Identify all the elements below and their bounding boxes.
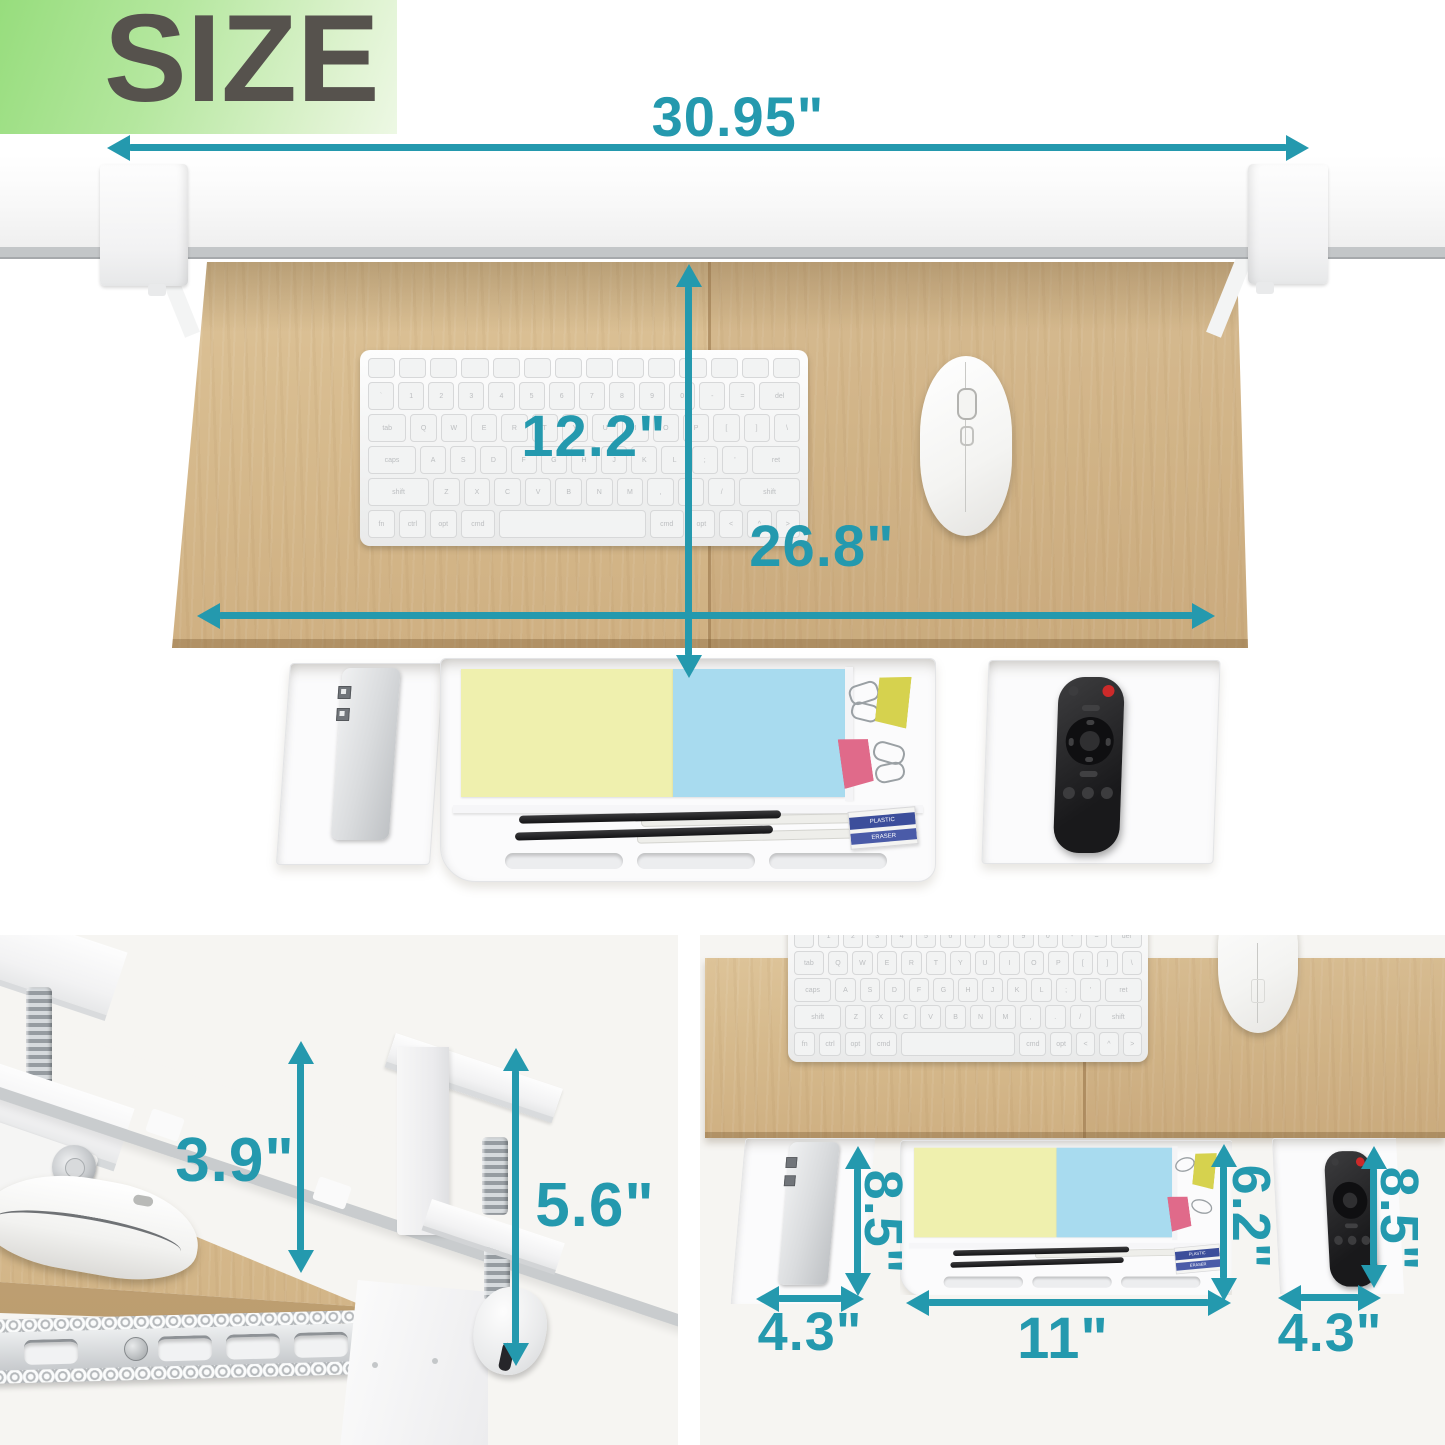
keyboard-key	[399, 358, 426, 378]
binder-clip-wire	[1190, 1197, 1214, 1217]
keyboard-key: 6	[940, 935, 960, 948]
keyboard-key: del	[1111, 935, 1142, 948]
far-clamp-top	[0, 935, 128, 1021]
keyboard-key: S	[860, 978, 881, 1002]
remote-button	[1063, 787, 1075, 799]
drawer-slot	[505, 853, 623, 869]
keyboard-key: B	[555, 478, 582, 506]
mouse-button	[960, 426, 974, 446]
keyboard-key: opt	[845, 1032, 866, 1056]
sticky-note-yellow	[461, 669, 673, 797]
left-side-drawer	[276, 663, 444, 865]
keyboard-key: [	[713, 414, 739, 442]
rail-slot	[294, 1332, 349, 1358]
keyboard-key: ret	[1105, 978, 1142, 1002]
remote-button	[1068, 686, 1078, 696]
keyboard-key: 4	[891, 935, 911, 948]
right-side-drawer	[981, 660, 1220, 864]
keyboard-key: M	[995, 1005, 1016, 1029]
screw-dot	[372, 1362, 378, 1368]
keyboard-key: 9	[1013, 935, 1033, 948]
sticky-note-blue	[1057, 1148, 1173, 1238]
keyboard-key: caps	[794, 978, 831, 1002]
clamp-right-knob	[1256, 282, 1274, 294]
dimension-label-desk-width: 30.95"	[618, 88, 858, 144]
clamp-right	[1248, 164, 1328, 284]
desk-slab	[0, 155, 1445, 247]
eraser-label: ERASER	[1176, 1259, 1221, 1271]
keyboard-key: C	[494, 478, 521, 506]
clamp-screw-upper	[482, 1137, 508, 1215]
keyboard-key: fn	[368, 510, 395, 538]
keyboard-key: Q	[828, 951, 848, 975]
rail-screw	[124, 1337, 149, 1362]
keyboard-key: .	[1045, 1005, 1066, 1029]
keyboard-key: /	[1070, 1005, 1091, 1029]
keyboard-key: <	[1076, 1032, 1095, 1056]
keyboard-key: cmd	[461, 510, 495, 538]
usb-hub-device	[778, 1142, 840, 1285]
keyboard-key: X	[870, 1005, 891, 1029]
dimension-label-left-drawer-width: 4.3"	[740, 1304, 880, 1360]
remote-dpad	[1065, 717, 1115, 765]
keyboard-key: 3	[458, 382, 484, 410]
keyboard-key: ,	[1020, 1005, 1041, 1029]
keyboard-key: N	[970, 1005, 991, 1029]
dimension-label-right-drawer-depth: 8.5"	[1371, 1159, 1427, 1279]
drawer-slot	[1032, 1277, 1111, 1288]
dimension-label-center-drawer-depth: 6.2"	[1223, 1157, 1279, 1277]
rail-slot	[24, 1339, 79, 1365]
drawer-slot	[769, 853, 887, 869]
keyboard-key: 5	[916, 935, 936, 948]
dimension-label-clearance: 3.9"	[155, 1128, 315, 1192]
clamp-left-knob	[148, 284, 166, 296]
keyboard-key: `	[794, 935, 814, 948]
keyboard-key: 2	[428, 382, 454, 410]
dimension-label-tray-depth: 12.2"	[494, 408, 694, 464]
keyboard-key: 3	[867, 935, 887, 948]
keyboard-key: -	[1062, 935, 1082, 948]
keyboard-key	[586, 358, 613, 378]
keyboard-key: del	[759, 382, 800, 410]
keyboard-key: shift	[368, 478, 429, 506]
drawer-slot	[637, 853, 755, 869]
page-title: SIZE	[104, 0, 380, 124]
keyboard-key: tab	[794, 951, 824, 975]
mouse	[920, 356, 1012, 536]
remote-button	[1334, 1236, 1343, 1245]
keyboard-key: R	[901, 951, 921, 975]
remote-button	[1082, 787, 1094, 799]
eraser-label: PLASTIC	[849, 812, 916, 830]
keyboard-key: -	[699, 382, 725, 410]
screw-dot	[432, 1358, 438, 1364]
keyboard-key: I	[999, 951, 1019, 975]
keyboard-key: ctrl	[819, 1032, 840, 1056]
dimension-arrow-right-drawer-width	[1299, 1294, 1360, 1301]
keyboard-key: 1	[818, 935, 838, 948]
dimension-label-clamp-height: 5.6"	[515, 1173, 675, 1237]
keyboard-key	[773, 358, 800, 378]
keyboard-key	[901, 1032, 1015, 1056]
desk-slab-edge	[0, 247, 1445, 259]
eraser: PLASTIC ERASER	[847, 806, 918, 850]
remote-power-button	[1102, 685, 1114, 697]
keyboard-key: C	[895, 1005, 916, 1029]
keyboard-key	[430, 358, 457, 378]
keyboard-key: opt	[1050, 1032, 1071, 1056]
dimension-arrow-tray-depth	[685, 285, 692, 657]
keyboard-key: ]	[744, 414, 770, 442]
under-drawer-view: `1234567890-=deltabQWERTYUIOP[]\capsASDF…	[700, 935, 1445, 1445]
rail-slot	[226, 1333, 281, 1359]
usb-port-icon	[336, 708, 350, 721]
keyboard-key	[711, 358, 738, 378]
dimension-label-right-drawer-width: 4.3"	[1260, 1305, 1400, 1361]
keyboard-key	[679, 358, 706, 378]
keyboard-key: V	[525, 478, 552, 506]
keyboard-key: P	[1048, 951, 1068, 975]
keyboard-key: W	[852, 951, 872, 975]
title-panel: SIZE	[0, 0, 397, 134]
keyboard-key: U	[975, 951, 995, 975]
keyboard-key: V	[920, 1005, 941, 1029]
dimension-arrow-tray-width	[218, 612, 1194, 619]
drawer-slide-rail	[0, 1310, 363, 1384]
keyboard-key: ]	[1097, 951, 1117, 975]
keyboard-key: =	[1086, 935, 1106, 948]
keyboard-key: '	[722, 446, 748, 474]
keyboard-key: \	[774, 414, 800, 442]
keyboard-key: E	[877, 951, 897, 975]
usb-hub-device	[331, 668, 401, 840]
keyboard-key: shift	[1095, 1005, 1142, 1029]
keyboard-key: O	[1024, 951, 1044, 975]
keyboard: `1234567890-=deltabQWERTYUIOP[]\capsASDF…	[788, 935, 1148, 1062]
keyboard-key: shift	[794, 1005, 841, 1029]
usb-port-icon	[338, 686, 352, 699]
keyboard-key: 2	[843, 935, 863, 948]
keyboard-key: =	[729, 382, 755, 410]
keyboard-key: ,	[647, 478, 674, 506]
keyboard-key: \	[1122, 951, 1142, 975]
eraser: PLASTIC ERASER	[1174, 1244, 1222, 1275]
keyboard-key: ;	[692, 446, 718, 474]
keyboard-key: caps	[368, 446, 416, 474]
keyboard-key	[617, 358, 644, 378]
remote-control	[1053, 677, 1125, 853]
keyboard-key: Z	[845, 1005, 866, 1029]
sticky-note-blue	[673, 669, 845, 797]
keyboard-key: >	[1123, 1032, 1142, 1056]
remote-button	[1101, 787, 1113, 799]
keyboard-key: tab	[368, 414, 406, 442]
keyboard-key: A	[835, 978, 856, 1002]
keyboard-key: H	[958, 978, 979, 1002]
keyboard-key: opt	[430, 510, 457, 538]
rail-slot	[158, 1335, 213, 1361]
keyboard-key: S	[450, 446, 476, 474]
keyboard-key: /	[708, 478, 735, 506]
keyboard-key: [	[1073, 951, 1093, 975]
keyboard-key: M	[617, 478, 644, 506]
side-clamp-view: 3.9" 5.6"	[0, 935, 678, 1445]
keyboard-key: 8	[989, 935, 1009, 948]
keyboard-key: ;	[1056, 978, 1077, 1002]
remote-button	[1082, 705, 1100, 711]
dimension-label-center-drawer-width: 11"	[993, 1310, 1133, 1366]
mouse-scroll-wheel	[132, 1194, 153, 1207]
dimension-label-tray-width: 26.8"	[722, 518, 922, 574]
eraser-label: PLASTIC	[1175, 1248, 1220, 1260]
keyboard-key	[461, 358, 488, 378]
top-dimension-view: SIZE `1234567890-=deltabQWERTYUIOP[]\cap…	[0, 0, 1445, 932]
keyboard-key: G	[933, 978, 954, 1002]
sticky-note-yellow	[914, 1148, 1056, 1238]
keyboard-key: W	[441, 414, 467, 442]
keyboard-key	[499, 510, 645, 538]
eraser-label: ERASER	[850, 828, 917, 845]
pen-black	[950, 1257, 1123, 1268]
keyboard-key	[555, 358, 582, 378]
keyboard-key: fn	[794, 1032, 815, 1056]
keyboard-key	[648, 358, 675, 378]
product-size-infographic: SIZE `1234567890-=deltabQWERTYUIOP[]\cap…	[0, 0, 1445, 1445]
keyboard-key: N	[586, 478, 613, 506]
keyboard-key: 7	[965, 935, 985, 948]
remote-dpad	[1332, 1182, 1368, 1219]
keyboard-key	[742, 358, 769, 378]
keyboard-key: X	[464, 478, 491, 506]
keyboard-key	[524, 358, 551, 378]
binder-clip-wire	[873, 760, 906, 785]
keyboard-key: A	[420, 446, 446, 474]
usb-port-icon	[784, 1175, 796, 1186]
dimension-label-left-drawer-depth: 8.5"	[855, 1162, 911, 1282]
keyboard-key: Q	[410, 414, 436, 442]
keyboard-key: cmd	[650, 510, 684, 538]
mouse-label-smudge	[1251, 979, 1265, 1003]
clamp-foot-plate	[340, 1280, 488, 1445]
keyboard-key	[493, 358, 520, 378]
remote-button	[1079, 771, 1097, 777]
keyboard-key: cmd	[870, 1032, 897, 1056]
keyboard-key: ret	[752, 446, 800, 474]
keyboard-key: B	[945, 1005, 966, 1029]
keyboard-key: Y	[950, 951, 970, 975]
keyboard-key: ^	[1099, 1032, 1118, 1056]
remote-button	[1345, 1223, 1358, 1228]
keyboard-key: 1	[398, 382, 424, 410]
center-drawer: PLASTIC ERASER	[440, 658, 936, 882]
remote-button	[1331, 1158, 1339, 1166]
drawer-slot	[1121, 1277, 1200, 1288]
keyboard-key: '	[1080, 978, 1101, 1002]
keyboard-key: L	[1031, 978, 1052, 1002]
remote-button	[1348, 1236, 1357, 1245]
clamp-left	[100, 164, 188, 286]
binder-clip-yellow	[874, 673, 911, 728]
drawer-slot	[944, 1277, 1023, 1288]
keyboard-key: Z	[433, 478, 460, 506]
keyboard-key: 0	[1038, 935, 1058, 948]
mouse-seam	[0, 1200, 184, 1269]
center-drawer: PLASTIC ERASER	[900, 1140, 1232, 1295]
keyboard-key: `	[368, 382, 394, 410]
keyboard-key: J	[982, 978, 1003, 1002]
keyboard-key: 4	[488, 382, 514, 410]
usb-port-icon	[785, 1157, 797, 1168]
keyboard-key: K	[1007, 978, 1028, 1002]
keyboard-key: cmd	[1019, 1032, 1046, 1056]
keyboard-key	[368, 358, 395, 378]
keyboard-key: ctrl	[399, 510, 426, 538]
keyboard-key: D	[884, 978, 905, 1002]
keyboard-key: shift	[739, 478, 800, 506]
keyboard-key: T	[926, 951, 946, 975]
tray-front-edge	[170, 639, 1250, 648]
keyboard-key: F	[909, 978, 930, 1002]
mouse-scroll-wheel	[957, 388, 977, 420]
